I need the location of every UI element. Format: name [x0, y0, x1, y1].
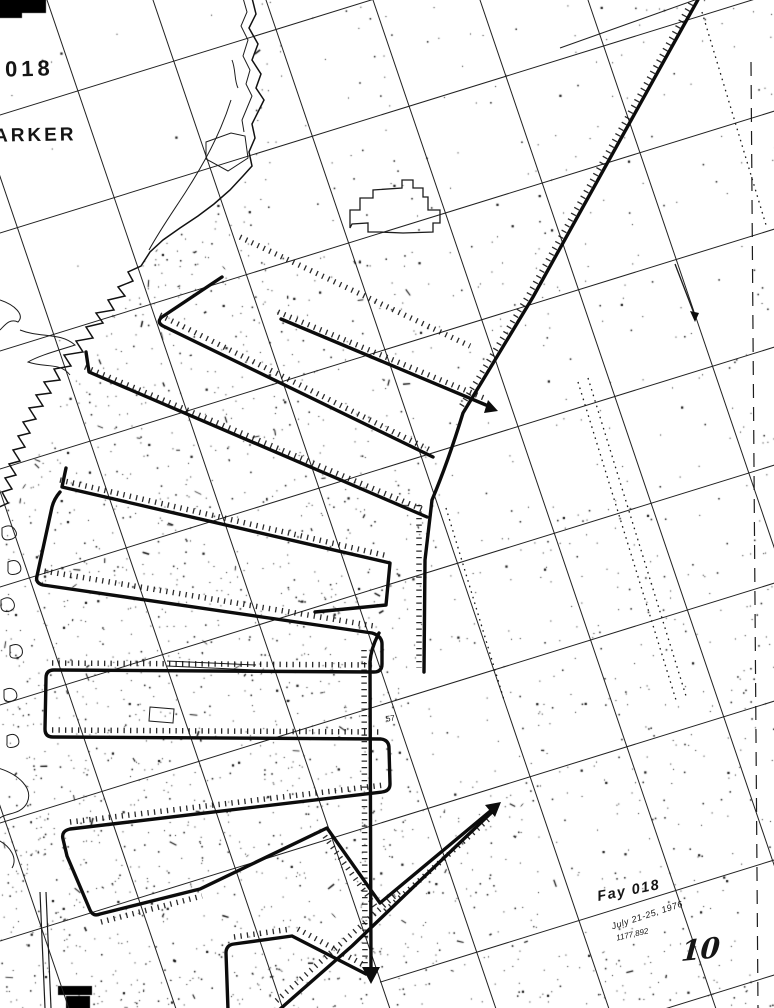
- page-number-label: 10: [680, 934, 721, 966]
- lagoon-shore: [149, 100, 231, 250]
- islet-2: [8, 561, 21, 575]
- shore-fragment-1: [0, 768, 29, 820]
- dotted-trail-3: [588, 378, 686, 696]
- place-name-label: ARKER: [0, 125, 77, 145]
- sounding-number-label: 57: [385, 714, 395, 723]
- river-west-bank: [241, 0, 252, 132]
- corner-number-label: 018: [5, 57, 54, 80]
- dotted-trail-1: [702, 12, 766, 225]
- dotted-trail-2: [578, 382, 676, 700]
- islet-6: [7, 734, 19, 747]
- dotted-trail-4: [446, 508, 504, 700]
- channel-double-line-b: [46, 892, 51, 1008]
- islet-5: [4, 688, 17, 701]
- islet-4: [10, 645, 23, 659]
- chart-drawing: [0, 0, 774, 1008]
- restricted-area-outline: [350, 180, 440, 233]
- islet-3: [1, 598, 14, 612]
- river-mouth-island: [206, 133, 248, 171]
- track-arrow-down: [362, 967, 380, 984]
- track-leg-3: [86, 352, 427, 517]
- bay-squiggle-2: [0, 300, 20, 330]
- track-long-diagonal: [424, 0, 700, 672]
- survey-track: [37, 0, 700, 1008]
- track-arrow-leg2: [484, 400, 498, 413]
- shore-fragment-2: [0, 840, 14, 868]
- channel-double-line-a: [40, 892, 45, 1008]
- track-time-ticks: [38, 0, 694, 1003]
- current-arrow-head: [690, 311, 699, 322]
- grid-lines: [0, 0, 774, 1008]
- chart-features: [40, 12, 766, 1008]
- current-arrow-line: [675, 264, 695, 316]
- cable-double-line-b: [167, 661, 256, 665]
- small-rectangle: [149, 707, 174, 723]
- tidal-creek: [232, 60, 238, 88]
- scanned-survey-chart-page: 018 ARKER Fay 018 July 21-25, 1976 1177,…: [0, 0, 774, 1008]
